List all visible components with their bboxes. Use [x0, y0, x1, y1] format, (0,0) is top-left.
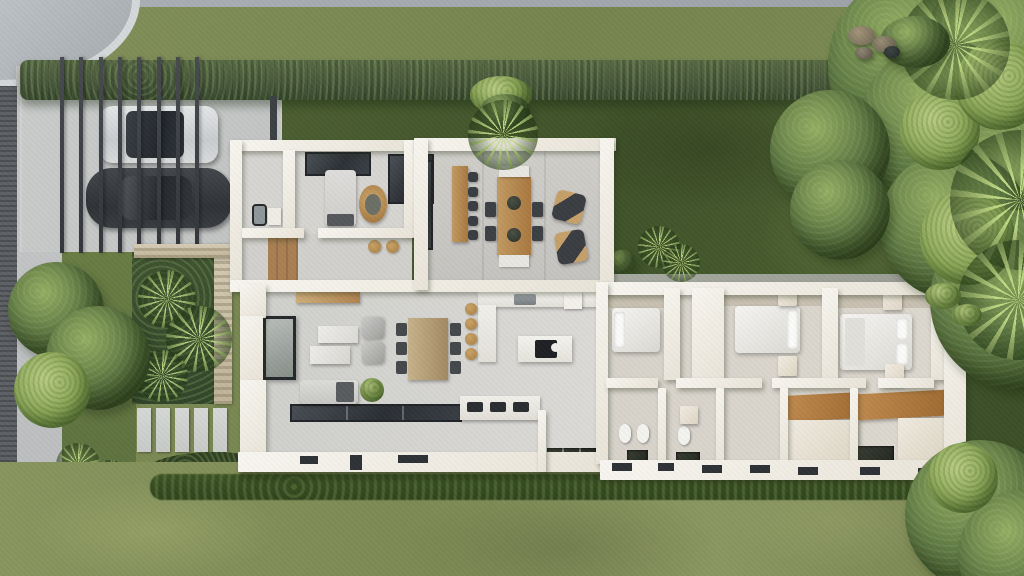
kitchen-counter-left — [478, 305, 496, 362]
wall-bed1-right — [664, 288, 680, 380]
wall-bottom-right-wing — [600, 460, 960, 480]
wall-living-left-a — [240, 284, 266, 318]
wall-living-left-b — [240, 316, 263, 382]
stepping-stone — [194, 408, 208, 452]
headboard-wall-1 — [608, 294, 664, 308]
wall-bath-block — [692, 288, 724, 380]
gravel-strip — [0, 86, 17, 472]
wall-entry-divider — [283, 150, 295, 232]
bar-stool — [468, 216, 478, 226]
dining-chair — [450, 361, 461, 374]
pergola-slat — [176, 57, 180, 253]
rattan-chair-seat — [365, 194, 381, 215]
wall-bath1-left — [658, 388, 666, 462]
pergola-slat — [118, 57, 122, 253]
living-sofa-cushion — [336, 382, 354, 402]
dining-chair — [450, 323, 461, 336]
entry-mirror — [252, 204, 267, 226]
master-bed-throw — [845, 318, 865, 366]
wall-lounge-top — [230, 140, 416, 151]
kitchen-stool — [465, 348, 477, 360]
bar-stool — [468, 230, 478, 240]
dining-chair — [396, 342, 407, 355]
stepping-stone — [156, 408, 170, 452]
door-glass-9 — [860, 467, 880, 475]
tree-bottom-right-3 — [928, 443, 998, 513]
living-sideboard — [296, 292, 360, 303]
wall-hall-divider-b — [318, 228, 414, 238]
rock-3 — [855, 47, 873, 59]
terrace-beam-left — [414, 138, 428, 290]
pergola-slat — [195, 57, 199, 253]
toilet-1 — [619, 424, 631, 443]
wall-corridor-a — [606, 378, 658, 388]
kitchen-sink — [514, 294, 536, 305]
bed-2-pillow — [787, 310, 798, 349]
door-glass-6 — [702, 465, 722, 473]
door-glass-1 — [300, 456, 318, 464]
backyard-agave-2 — [662, 244, 700, 282]
bar-stool — [468, 172, 478, 182]
bush-over-wall-1 — [925, 283, 961, 309]
hall-wood-floor — [268, 238, 298, 284]
tree-left-canopy-2 — [790, 160, 890, 260]
terrace-beam-right — [600, 138, 614, 290]
stove-burner — [467, 402, 483, 412]
wall-wing-top — [600, 282, 952, 295]
wardrobe-2-top — [858, 390, 944, 421]
pergola-slat — [79, 57, 83, 253]
stove-burner — [513, 402, 529, 412]
rock-4 — [884, 46, 900, 58]
door-glass-2 — [350, 455, 362, 470]
door-glass-4 — [612, 463, 632, 471]
rock-1 — [848, 26, 875, 45]
lounge-pouf-2 — [386, 240, 399, 253]
coffee-table-2 — [310, 346, 350, 364]
terrace-top-palm — [468, 100, 538, 170]
wall-hall-divider-a — [242, 228, 304, 238]
terrace-lounge-chair-2 — [553, 229, 588, 266]
wall-closet-mid — [850, 388, 858, 462]
wall-corridor-b — [676, 378, 762, 388]
door-glass-5 — [658, 463, 674, 471]
island-faucet — [551, 343, 560, 352]
armchair-2 — [362, 342, 384, 364]
stepping-stone — [213, 408, 227, 452]
glass-floor-strip — [290, 404, 462, 422]
armchair-1 — [362, 317, 384, 339]
bar-stool — [468, 201, 478, 211]
pergola-slat — [137, 57, 141, 253]
living-window — [263, 316, 296, 380]
bath-2-vanity — [680, 406, 698, 424]
door-glass-7 — [750, 465, 770, 473]
wall-bath2-right — [716, 388, 724, 462]
headboard-wall-2 — [724, 294, 822, 306]
stepping-stone — [175, 408, 189, 452]
terrace-bar — [452, 166, 468, 242]
master-pillow-1 — [896, 318, 908, 340]
wardrobe-1-top — [788, 392, 856, 422]
bar-stool — [468, 187, 478, 197]
bed-1-pillow — [614, 312, 625, 348]
terrace-bench-bottom — [499, 255, 529, 267]
terrace-dining-table — [497, 177, 531, 255]
aerial-house-render — [0, 0, 1024, 576]
kitchen-stool — [465, 333, 477, 345]
kitchen-stool — [465, 303, 477, 315]
lounge-sofa-cushion — [327, 214, 354, 226]
terrace-chair-1 — [485, 202, 496, 217]
wall-lounge-left — [230, 140, 242, 284]
pergola-slat — [157, 57, 161, 253]
entry-console — [268, 208, 281, 225]
bush-over-wall-2 — [952, 304, 982, 326]
dining-chair — [450, 342, 461, 355]
terrace-chair-4 — [532, 226, 543, 241]
terrace-chair-3 — [532, 202, 543, 217]
dining-table — [408, 318, 448, 380]
wall-utility-left — [538, 410, 546, 472]
door-glass-3 — [398, 455, 428, 463]
kitchen-stool — [465, 318, 477, 330]
master-pillow-2 — [896, 343, 908, 365]
nightstand-2b — [778, 356, 797, 376]
terrace-chair-2 — [485, 226, 496, 241]
lounge-pouf-1 — [368, 240, 381, 253]
wall-main-vertical — [596, 282, 608, 464]
living-plant — [360, 378, 384, 402]
coffee-table-1 — [318, 326, 358, 343]
stone-wall-horizontal — [134, 244, 232, 258]
kitchen-corner-cabinet — [564, 292, 582, 309]
dining-chair — [396, 323, 407, 336]
overhang-tree-3 — [14, 352, 90, 428]
wall-closet-left — [780, 388, 788, 462]
pergola-slat — [60, 57, 64, 253]
terrace-bowl-1 — [507, 196, 521, 210]
toilet-2 — [637, 424, 649, 443]
door-glass-8 — [798, 467, 818, 475]
toilet-3 — [678, 426, 690, 445]
wall-corridor-c — [772, 378, 866, 388]
pergola-slat — [99, 57, 103, 253]
terrace-bowl-2 — [507, 228, 521, 242]
dining-chair — [396, 361, 407, 374]
stepping-stone — [137, 408, 151, 452]
wall-corridor-d — [878, 378, 934, 388]
stove-burner — [490, 402, 506, 412]
wall-bed2-right — [822, 288, 838, 380]
